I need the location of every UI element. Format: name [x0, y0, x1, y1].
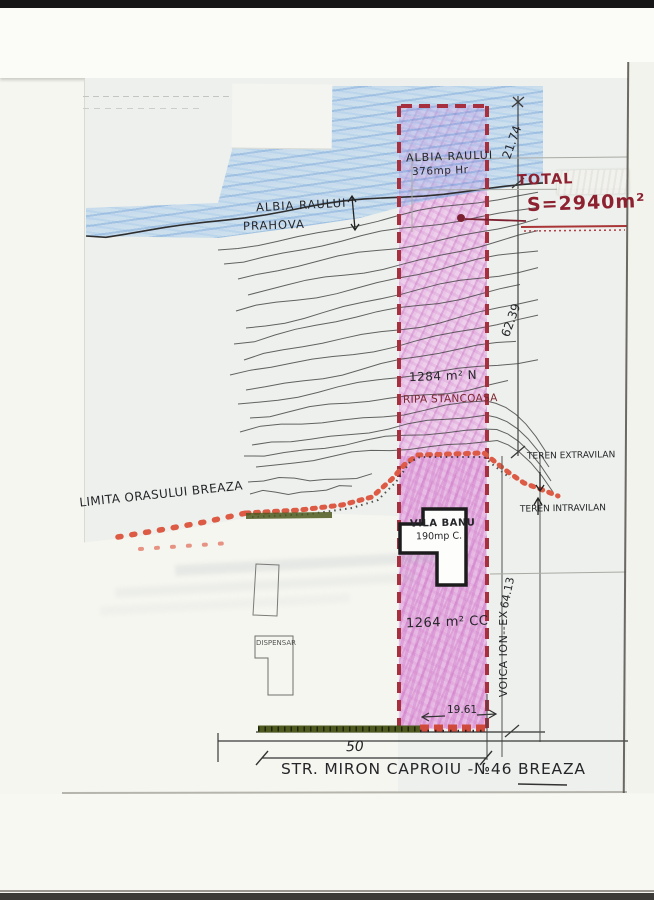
faint-pencil-dashes	[83, 108, 201, 109]
vila-banu-area: 190mp C.	[416, 532, 462, 543]
outer-paper-right	[628, 62, 654, 793]
sheet-left-edge	[84, 80, 85, 545]
scanned-survey-plan: ALBIA RAULUI 376mp Hr ALBIA RAULUI PRAHO…	[0, 0, 654, 900]
faint-pencil-dashes	[83, 96, 233, 97]
parcel-lower-tint	[400, 456, 486, 728]
dim-50: 50	[346, 740, 364, 755]
total-stamp: TOTAL	[517, 172, 574, 189]
outer-paper-top	[0, 8, 654, 78]
parcel-lower-area: 1264 m² CC	[406, 615, 489, 632]
neighbor-voica-ion: VOICA ION--EX	[498, 608, 510, 700]
albia-raului-parcel-area: 376mp Hr	[412, 165, 469, 178]
albia-raului-parcel-label: ALBIA RAULUI	[406, 149, 493, 164]
taped-white-patch	[232, 83, 333, 149]
total-area-stamp: S=2940m²	[527, 192, 646, 216]
outer-paper-bottom	[0, 794, 654, 890]
prahova-label: PRAHOVA	[243, 218, 305, 232]
teren-intravilan-label: TEREN INTRAVILAN	[520, 504, 606, 515]
teren-extravilan-label: TEREN EXTRAVILAN	[527, 451, 615, 462]
scan-top-band	[0, 0, 654, 8]
scan-bottom-band	[0, 893, 654, 900]
dim-19-61: 19.61	[447, 705, 477, 716]
ripa-stancoasa-label: RIPA STANCOASA	[403, 393, 498, 406]
vila-banu-name: VILA BANU	[410, 518, 476, 530]
parcel-upper-area: 1284 m² N	[409, 369, 478, 384]
street-name: STR. MIRON CAPROIU -№46 BREAZA	[281, 761, 586, 777]
dispensar-label: DISPENSAR	[256, 640, 296, 647]
scan-bottom-line	[0, 890, 654, 892]
